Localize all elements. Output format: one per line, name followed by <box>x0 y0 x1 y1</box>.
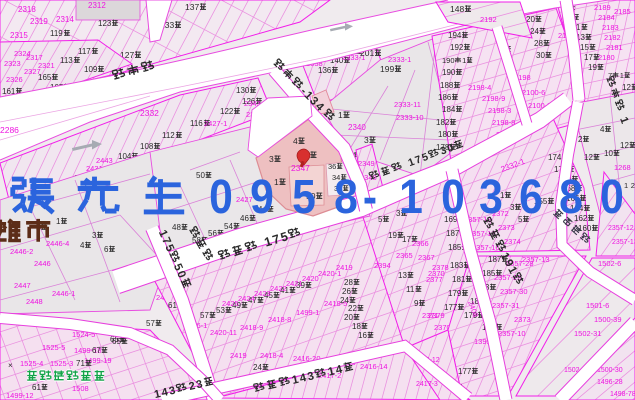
svg-text:4: 4 <box>600 125 605 134</box>
svg-text:12: 12 <box>620 141 629 150</box>
svg-text:24: 24 <box>530 27 539 36</box>
svg-text:1499-12: 1499-12 <box>6 391 34 400</box>
svg-text:2323: 2323 <box>4 59 21 68</box>
svg-text:2394: 2394 <box>374 261 391 270</box>
svg-text:190: 190 <box>442 56 455 65</box>
svg-text:177: 177 <box>458 367 472 376</box>
svg-text:12: 12 <box>622 83 631 92</box>
svg-text:1525-4: 1525-4 <box>20 359 43 368</box>
svg-text:2286: 2286 <box>0 125 19 135</box>
svg-text:2185: 2185 <box>614 7 631 16</box>
svg-text:4: 4 <box>80 241 85 250</box>
svg-text:18: 18 <box>352 322 361 331</box>
svg-text:184: 184 <box>442 105 456 114</box>
svg-text:1498-78: 1498-78 <box>610 391 635 398</box>
svg-text:2446: 2446 <box>34 259 51 268</box>
svg-text:2424: 2424 <box>238 294 255 303</box>
svg-text:119: 119 <box>50 29 63 38</box>
svg-text:2419: 2419 <box>336 263 353 272</box>
svg-text:5: 5 <box>378 215 383 224</box>
svg-text:1: 1 <box>462 56 466 65</box>
svg-text:15: 15 <box>580 43 589 52</box>
svg-text:130: 130 <box>236 86 250 95</box>
svg-text:1496-28: 1496-28 <box>597 379 623 386</box>
svg-text:24: 24 <box>253 363 262 372</box>
svg-text:179: 179 <box>448 289 462 298</box>
svg-text:28: 28 <box>534 39 543 48</box>
svg-text:2446-2: 2446-2 <box>10 247 33 256</box>
svg-text:1: 1 <box>56 217 61 226</box>
svg-text:1525-3: 1525-3 <box>50 359 73 368</box>
svg-text:1500-39: 1500-39 <box>594 315 622 324</box>
svg-text:2349: 2349 <box>358 159 375 168</box>
svg-text:1: 1 <box>274 177 279 187</box>
svg-text:2340: 2340 <box>348 123 366 132</box>
svg-text:2377: 2377 <box>426 275 443 284</box>
svg-text:123: 123 <box>98 19 112 28</box>
svg-text:65: 65 <box>112 337 121 346</box>
svg-text:12: 12 <box>584 153 593 162</box>
svg-text:11: 11 <box>406 285 415 294</box>
svg-text:122: 122 <box>220 107 234 116</box>
svg-text:2365: 2365 <box>396 251 413 260</box>
svg-text:2324: 2324 <box>14 49 31 58</box>
svg-text:10: 10 <box>604 149 613 158</box>
svg-text:9: 9 <box>414 299 419 308</box>
svg-text:19: 19 <box>388 231 397 240</box>
svg-text:2357-12: 2357-12 <box>608 225 634 232</box>
svg-text:2: 2 <box>578 135 583 144</box>
svg-text:2420-11: 2420-11 <box>210 328 237 337</box>
svg-text:20: 20 <box>526 15 535 24</box>
svg-text:4: 4 <box>293 136 298 146</box>
svg-text:2417-3: 2417-3 <box>416 381 438 388</box>
svg-text:2418-4: 2418-4 <box>260 351 283 360</box>
svg-text:2425: 2425 <box>222 299 239 308</box>
svg-text:2420: 2420 <box>302 274 319 283</box>
svg-text:2373: 2373 <box>498 223 515 232</box>
svg-text:2333-11: 2333-11 <box>394 100 421 109</box>
svg-text:3: 3 <box>510 203 515 212</box>
svg-text:2180: 2180 <box>598 53 615 62</box>
svg-text:48: 48 <box>172 223 181 232</box>
svg-text:0958-103680: 0958-103680 <box>209 169 624 223</box>
svg-text:22: 22 <box>348 304 357 313</box>
svg-text:2357-30: 2357-30 <box>500 287 528 296</box>
svg-text:19: 19 <box>588 63 597 72</box>
svg-text:2198-9: 2198-9 <box>482 94 505 103</box>
svg-text:112: 112 <box>162 131 175 140</box>
svg-text:3: 3 <box>92 231 97 240</box>
svg-text:2318: 2318 <box>18 5 36 14</box>
svg-text:177: 177 <box>444 303 458 312</box>
svg-text:61: 61 <box>32 383 41 392</box>
svg-text:2418-8: 2418-8 <box>268 315 291 324</box>
svg-text:3: 3 <box>269 154 274 164</box>
svg-text:190: 190 <box>442 68 456 77</box>
svg-text:2: 2 <box>631 181 635 190</box>
svg-text:2319: 2319 <box>30 17 48 26</box>
svg-text:2184: 2184 <box>598 13 615 22</box>
svg-text:194: 194 <box>448 31 462 40</box>
svg-text:181: 181 <box>452 275 466 284</box>
svg-text:2367: 2367 <box>418 253 435 262</box>
svg-text:2357-13: 2357-13 <box>612 239 635 246</box>
svg-text:2421: 2421 <box>286 279 303 288</box>
svg-text:2181: 2181 <box>606 43 623 52</box>
svg-text:137: 137 <box>185 2 199 12</box>
svg-text:2446-4: 2446-4 <box>46 239 69 248</box>
svg-text:192: 192 <box>450 43 464 52</box>
svg-text:2198-3: 2198-3 <box>488 106 511 115</box>
svg-text:2422: 2422 <box>270 284 287 293</box>
svg-text:2100-6: 2100-6 <box>522 88 545 97</box>
svg-text:17: 17 <box>402 235 411 244</box>
svg-text:2357-10: 2357-10 <box>498 329 526 338</box>
svg-text:2374: 2374 <box>504 237 521 246</box>
svg-text:2326: 2326 <box>6 75 23 84</box>
svg-text:2379: 2379 <box>428 311 445 320</box>
svg-text:2416-14: 2416-14 <box>360 362 388 371</box>
svg-text:20: 20 <box>344 313 353 322</box>
svg-text:2198-4: 2198-4 <box>468 83 491 92</box>
svg-text:2419: 2419 <box>230 351 247 360</box>
svg-text:108: 108 <box>140 142 154 151</box>
svg-text:2333-10: 2333-10 <box>396 113 424 122</box>
svg-text:2357-13: 2357-13 <box>522 255 550 264</box>
svg-text:2314: 2314 <box>56 15 74 24</box>
svg-text:187: 187 <box>446 229 460 238</box>
svg-text:28: 28 <box>344 278 353 287</box>
svg-text:174: 174 <box>548 153 562 162</box>
svg-text:1525-5: 1525-5 <box>42 343 65 352</box>
svg-text:30: 30 <box>536 51 545 60</box>
svg-text:2321: 2321 <box>38 61 55 70</box>
svg-text:188: 188 <box>440 81 454 90</box>
svg-text:2189: 2189 <box>594 3 611 12</box>
svg-text:1502-31: 1502-31 <box>574 329 602 338</box>
svg-text:2447: 2447 <box>14 281 31 290</box>
svg-text:183: 183 <box>450 261 464 270</box>
svg-text:1508: 1508 <box>72 384 89 393</box>
svg-text:6: 6 <box>104 245 109 254</box>
svg-text:1: 1 <box>620 71 624 80</box>
svg-text:2366: 2366 <box>412 239 429 248</box>
svg-text:1502-6: 1502-6 <box>598 259 621 268</box>
svg-text:26: 26 <box>342 287 351 296</box>
svg-text:185: 185 <box>448 243 462 252</box>
svg-text:2448: 2448 <box>26 297 43 306</box>
svg-text:16: 16 <box>358 331 367 340</box>
svg-text:57: 57 <box>146 319 155 328</box>
svg-text:182: 182 <box>436 118 450 127</box>
svg-text:×: × <box>8 361 13 370</box>
svg-text:2332: 2332 <box>140 108 159 118</box>
svg-text:2312: 2312 <box>88 1 106 10</box>
svg-text:199: 199 <box>380 64 394 74</box>
svg-text:2373: 2373 <box>514 315 531 324</box>
svg-text:13: 13 <box>398 271 407 280</box>
svg-text:2315: 2315 <box>10 31 28 40</box>
svg-text:148: 148 <box>450 4 464 14</box>
svg-text:2192: 2192 <box>480 15 497 24</box>
svg-text:2423: 2423 <box>254 289 271 298</box>
svg-text:1500-30: 1500-30 <box>597 367 623 374</box>
svg-text:180: 180 <box>438 130 452 139</box>
svg-text:116: 116 <box>190 119 203 128</box>
svg-text:2182: 2182 <box>604 33 621 42</box>
svg-text:117: 117 <box>78 47 91 56</box>
svg-text:17: 17 <box>584 53 593 62</box>
svg-text:2183: 2183 <box>602 23 619 32</box>
svg-text:2333-1: 2333-1 <box>388 55 411 64</box>
svg-text:67: 67 <box>92 346 101 355</box>
svg-text:3: 3 <box>364 135 369 145</box>
svg-text:109: 109 <box>84 65 98 74</box>
svg-text:50: 50 <box>196 171 205 180</box>
svg-text:1499-1: 1499-1 <box>296 308 319 317</box>
svg-text:2427-1: 2427-1 <box>204 119 227 128</box>
svg-text:2418-9: 2418-9 <box>240 323 263 332</box>
svg-text:46: 46 <box>240 214 249 223</box>
svg-text:71: 71 <box>76 359 85 368</box>
svg-text:1501-6: 1501-6 <box>586 301 609 310</box>
svg-text:186: 186 <box>438 93 452 102</box>
svg-text:2357-31: 2357-31 <box>492 301 520 310</box>
svg-text:1: 1 <box>624 181 628 190</box>
svg-text:1: 1 <box>338 110 343 120</box>
svg-text:57: 57 <box>200 311 209 320</box>
svg-text:113: 113 <box>60 56 73 65</box>
svg-text:2378: 2378 <box>432 263 449 272</box>
svg-text:2446-1: 2446-1 <box>52 289 75 298</box>
